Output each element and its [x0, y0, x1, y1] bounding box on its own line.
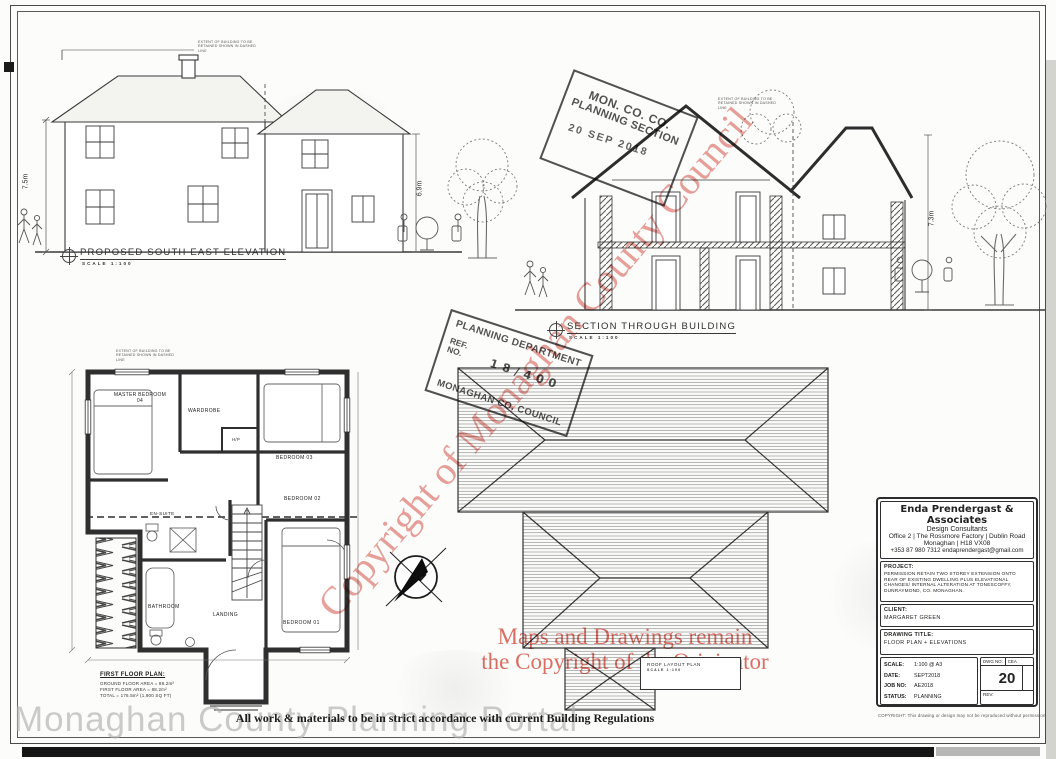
- status-label: STATUS:: [884, 692, 914, 703]
- elevation-retain-note: EXTENT OF BUILDING TO BE RETAINED SHOWN …: [198, 40, 264, 53]
- elevation-scale: SCALE 1:100: [82, 261, 133, 266]
- company-contact: +353 87 980 7312 endaprendergast@gmail.c…: [884, 547, 1030, 554]
- company-address-2: Monaghan | H18 VX08: [884, 540, 1030, 547]
- roof-plan-scale: SCALE 1:100: [647, 668, 740, 672]
- room-label-landing: LANDING: [213, 612, 238, 618]
- section-dim-right: 7.3m: [928, 211, 935, 227]
- rev-label: REV:: [981, 690, 1033, 704]
- section-scale: SCALE 1:100: [569, 335, 620, 340]
- title-block-client: CLIENT: MARGARET GREEN: [880, 604, 1034, 627]
- room-label-bedroom-01: BEDROOM 01: [283, 620, 320, 626]
- elevation-marker-icon: [62, 249, 76, 263]
- scale-value: 1:100 @ A3: [914, 660, 942, 671]
- project-label: PROJECT:: [884, 564, 1030, 570]
- section-marker-icon: [549, 323, 563, 337]
- floor-plan-title: FIRST FLOOR PLAN:: [100, 672, 165, 678]
- drawing-title-value: FLOOR PLAN + ELEVATIONS: [884, 640, 1030, 646]
- floor-plan-area-1: GROUND FLOOR AREA = 88.2m²: [100, 681, 174, 687]
- regulations-note: All work & materials to be in strict acc…: [225, 711, 665, 726]
- stamp-ref-number: 18/400: [488, 356, 563, 392]
- date-value: SEPT2018: [914, 671, 940, 682]
- scale-label: SCALE:: [884, 660, 914, 671]
- drawing-title-label: DRAWING TITLE:: [884, 632, 1030, 638]
- room-label-ensuite: EN-SUITE: [150, 511, 175, 516]
- room-label-wardrobe: WARDROBE: [188, 408, 220, 414]
- room-label-bedroom-02: BEDROOM 02: [284, 496, 321, 502]
- elevation-drawing: [18, 50, 462, 255]
- roof-plan-title: ROOF LAYOUT PLAN: [647, 662, 740, 667]
- plan-retain-note: EXTENT OF BUILDING TO BE RETAINED SHOWN …: [116, 349, 182, 362]
- company-address-1: Office 2 | The Rossmore Factory | Dublin…: [884, 533, 1030, 540]
- date-label: DATE:: [884, 671, 914, 682]
- title-block-meta: SCALE:1:100 @ A3 DATE:SEPT2018 JOB NO:AE…: [880, 657, 1034, 705]
- floor-plan-drawing: [69, 369, 360, 710]
- dwg-prefix: CEA: [1005, 658, 1019, 665]
- meta-left: SCALE:1:100 @ A3 DATE:SEPT2018 JOB NO:AE…: [880, 657, 978, 705]
- elevation-dim-right: 6.9m: [416, 181, 423, 197]
- meta-right: DWG NO: CEA 20 REV:: [980, 657, 1034, 705]
- company-name: Enda Prendergast & Associates: [884, 504, 1030, 526]
- dwg-number: 20: [981, 666, 1033, 690]
- drawing-sheet: Copyright of Monaghan County Council Map…: [0, 0, 1056, 759]
- section-title: SECTION THROUGH BUILDING: [567, 321, 736, 334]
- elevation-title: PROPOSED SOUTH EAST ELEVATION: [80, 247, 286, 260]
- project-text: PERMISSION RETAIN TWO STOREY EXTENSION O…: [884, 571, 1030, 593]
- room-label-master-bedroom: MASTER BEDROOM 04: [112, 392, 168, 404]
- dwg-label: DWG NO:: [981, 658, 1005, 665]
- status-value: PLANNING: [914, 692, 942, 703]
- title-block-header: Enda Prendergast & Associates Design Con…: [880, 501, 1034, 559]
- section-retain-note: EXTENT OF BUILDING TO BE RETAINED SHOWN …: [718, 97, 784, 110]
- room-label-bathroom: BATHROOM: [148, 604, 180, 610]
- title-block: Enda Prendergast & Associates Design Con…: [876, 497, 1038, 707]
- copyright-note: COPYRIGHT: This drawing or design may no…: [878, 713, 1046, 718]
- roof-plan-label-box: ROOF LAYOUT PLAN SCALE 1:100: [640, 657, 741, 690]
- client-label: CLIENT:: [884, 607, 1030, 613]
- room-label-bedroom-03: BEDROOM 03: [276, 455, 313, 461]
- company-subtitle: Design Consultants: [884, 526, 1030, 533]
- elevation-dim-left: 7.5m: [22, 174, 29, 190]
- floor-plan-area-3: TOTAL = 176.5m² (1,900 SQ FT): [100, 693, 171, 699]
- stamp-ref-label: REF. NO.: [446, 336, 469, 359]
- job-label: JOB NO:: [884, 681, 914, 692]
- title-block-project: PROJECT: PERMISSION RETAIN TWO STOREY EX…: [880, 561, 1034, 602]
- room-label-hp: H/P: [232, 437, 240, 442]
- client-name: MARGARET GREEN: [884, 615, 1030, 621]
- floor-plan-area-2: FIRST FLOOR AREA = 88.2m²: [100, 687, 167, 693]
- title-block-drawing-title: DRAWING TITLE: FLOOR PLAN + ELEVATIONS: [880, 629, 1034, 655]
- job-value: AE2018: [914, 681, 933, 692]
- watermark-line1: Maps and Drawings remain: [470, 624, 780, 649]
